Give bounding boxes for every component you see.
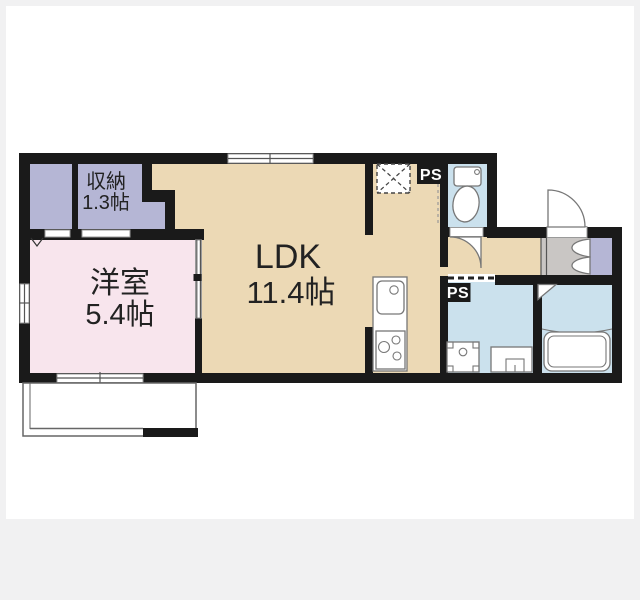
window-balcony-door bbox=[57, 372, 143, 384]
storage-size: 1.3帖 bbox=[82, 191, 130, 214]
ps-upper-label: PS bbox=[420, 167, 442, 184]
balcony bbox=[23, 383, 198, 437]
ldk-name: LDK bbox=[255, 238, 321, 276]
storage-name: 収納 bbox=[86, 170, 126, 193]
storage-door bbox=[82, 230, 130, 237]
kitchen-stove bbox=[376, 331, 405, 369]
refrigerator-space bbox=[377, 164, 410, 193]
room-hallway-floor bbox=[440, 237, 541, 276]
window-ldk-top bbox=[228, 153, 313, 164]
window-western-left bbox=[19, 284, 30, 323]
entrance-door-threshold bbox=[547, 227, 587, 238]
western-size: 5.4帖 bbox=[85, 298, 154, 331]
room-shoe-closet bbox=[590, 238, 612, 275]
closet-left-door bbox=[45, 230, 70, 237]
room-closet-left-floor bbox=[30, 164, 72, 229]
kitchen-counter bbox=[373, 277, 407, 371]
washing-machine-pan bbox=[447, 342, 479, 372]
washroom-sliding-door bbox=[448, 274, 495, 282]
kitchen-sink bbox=[377, 281, 404, 314]
ps-lower-label: PS bbox=[447, 285, 469, 302]
western-name: 洋室 bbox=[90, 267, 150, 300]
washbasin bbox=[491, 347, 532, 372]
ldk-size: 11.4帖 bbox=[246, 275, 335, 310]
toilet-door-threshold bbox=[450, 228, 483, 237]
bathtub bbox=[542, 329, 612, 371]
floor-plan: PS PS LDK 11.4帖 洋室 5.4帖 収納 1.3帖 bbox=[0, 0, 640, 600]
